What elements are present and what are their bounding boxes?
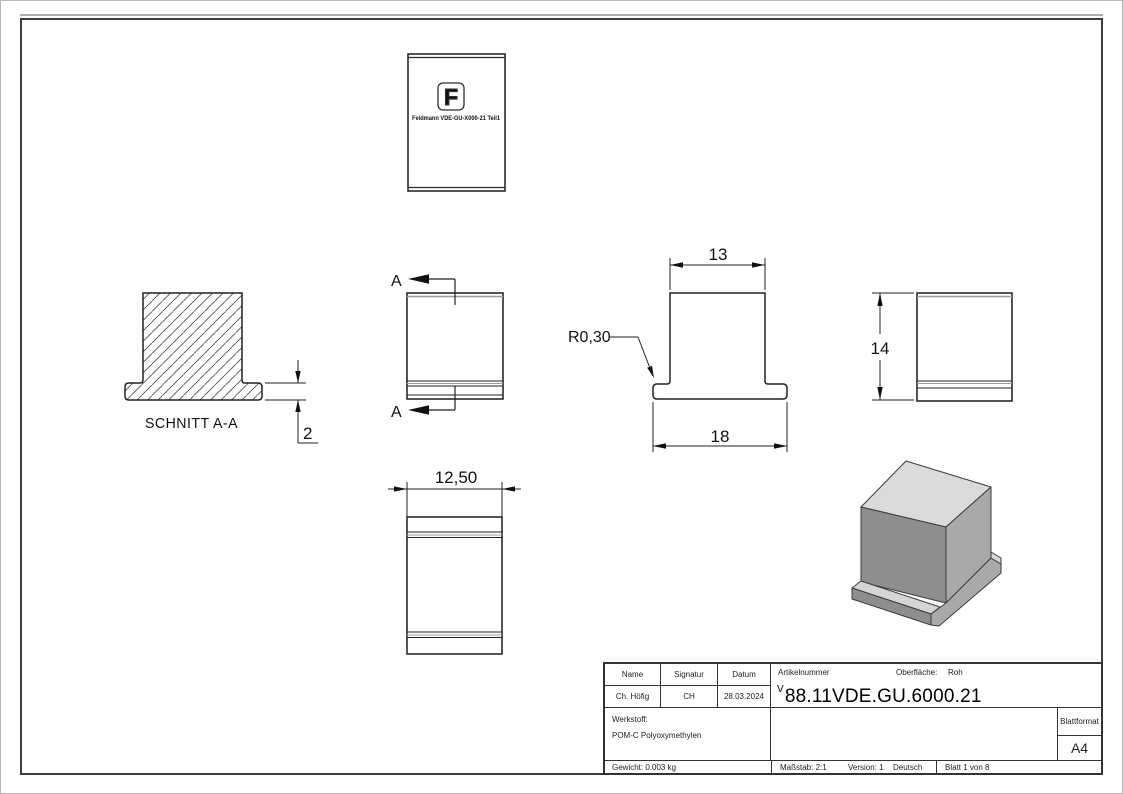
artikelnummer-cell: Artikelnummer Oberfläche: Roh V88.11VDE.… xyxy=(771,664,1101,708)
profile-view: 13 18 R0,30 xyxy=(555,240,810,460)
version-value: Version: 1 xyxy=(848,763,884,772)
gewicht-cell: Gewicht: 0.003 kg xyxy=(605,761,772,773)
dim-base-width-text: 18 xyxy=(711,427,730,446)
side-view-outline xyxy=(917,293,1012,401)
logo-text: Feldmann VDE-GU-X000-21 Teil1 xyxy=(412,115,500,122)
datum-label-cell: Datum xyxy=(718,664,771,686)
front-view: A A xyxy=(385,265,520,425)
side-view: 14 xyxy=(855,270,1025,420)
signatur-label-cell: Signatur xyxy=(661,664,718,686)
oberflaeche-label: Oberfläche: xyxy=(896,668,937,677)
blattformat-value-cell: A4 xyxy=(1058,736,1101,761)
datum-value-cell: 28.03.2024 xyxy=(718,686,771,708)
section-marker-top: A xyxy=(391,273,402,290)
name-label-cell: Name xyxy=(605,664,661,686)
werkstoff-label: Werkstoff: xyxy=(612,715,648,724)
sprache-value: Deutsch xyxy=(893,763,922,772)
oberflaeche-value: Roh xyxy=(948,668,963,677)
title-block: Name Signatur Datum Artikelnummer Oberfl… xyxy=(603,662,1103,775)
blattformat-label-cell: Blattformat xyxy=(1058,708,1101,736)
drawing-sheet: F Feldmann VDE-GU-X000-21 Teil1 2 SCHNIT… xyxy=(0,0,1123,794)
massstab-cell: Maßstab: 2:1 Version: 1 Deutsch xyxy=(772,761,937,773)
profile-outline xyxy=(653,293,787,399)
artikelnummer-prefix: V xyxy=(777,684,784,695)
section-marker-bottom: A xyxy=(391,404,402,421)
dim-flange-thickness-text: 2 xyxy=(303,424,312,443)
title-block-empty-cell xyxy=(771,708,1058,761)
section-profile xyxy=(125,293,262,400)
iso-view xyxy=(825,445,1015,645)
section-label: SCHNITT A-A xyxy=(145,415,238,432)
bottom-view: 12,50 xyxy=(380,460,530,660)
dim-depth xyxy=(388,482,521,517)
artikelnummer-value: V88.11VDE.GU.6000.21 xyxy=(777,684,982,708)
dim-fillet-leader xyxy=(610,337,654,378)
name-value-cell: Ch. Höfig xyxy=(605,686,661,708)
massstab-value: Maßstab: 2:1 xyxy=(780,763,827,772)
dim-top-width-text: 13 xyxy=(709,245,728,264)
dim-fillet-text: R0,30 xyxy=(568,329,611,346)
top-view: F Feldmann VDE-GU-X000-21 Teil1 xyxy=(405,50,509,198)
blatt-cell: Blatt 1 von 8 xyxy=(937,761,1101,773)
signatur-value-cell: CH xyxy=(661,686,718,708)
werkstoff-value: POM-C Polyoxymethylen xyxy=(612,731,701,740)
section-view: 2 SCHNITT A-A xyxy=(110,280,325,452)
frame-shadow xyxy=(20,14,1103,16)
logo-letter: F xyxy=(444,84,458,110)
top-view-outline xyxy=(408,54,505,191)
artikelnummer-label: Artikelnummer xyxy=(778,668,830,677)
dim-height-text: 14 xyxy=(871,339,890,358)
werkstoff-cell: Werkstoff: POM-C Polyoxymethylen xyxy=(605,708,771,761)
dim-depth-text: 12,50 xyxy=(435,468,478,487)
